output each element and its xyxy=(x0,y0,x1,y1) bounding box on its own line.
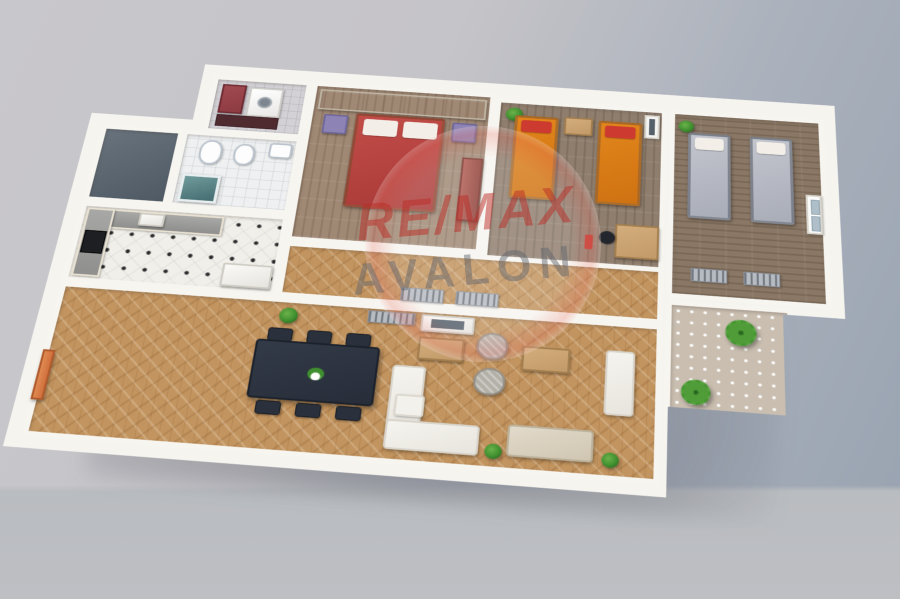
desk xyxy=(614,224,659,261)
room-kids-bedroom xyxy=(481,98,668,273)
ottoman xyxy=(393,394,425,418)
toilet xyxy=(197,140,225,165)
balcony xyxy=(663,299,796,425)
palm-plant xyxy=(681,379,711,407)
pillow xyxy=(756,141,785,155)
nightstand-left xyxy=(321,114,349,135)
window-pane xyxy=(811,200,821,215)
pillow xyxy=(695,137,724,151)
double-bed xyxy=(343,113,446,213)
tv-screen xyxy=(649,119,655,135)
room-bathroom xyxy=(166,129,304,215)
dining-chair xyxy=(294,403,322,419)
room-master-bedroom xyxy=(285,81,496,254)
radiator xyxy=(400,287,444,304)
dining-chair xyxy=(254,400,282,416)
pillow xyxy=(362,119,398,137)
window xyxy=(806,195,823,235)
window-pane xyxy=(811,216,821,232)
radiator xyxy=(743,272,780,288)
tv xyxy=(431,319,465,330)
entry-door xyxy=(30,349,55,400)
bathroom-sink xyxy=(268,143,294,159)
dining-chair xyxy=(334,406,361,422)
coffee-table xyxy=(521,346,571,374)
plant xyxy=(601,452,619,469)
armchair xyxy=(476,332,509,360)
radiator xyxy=(455,291,499,308)
single-bed-orange-1 xyxy=(508,115,559,201)
red-dresser xyxy=(456,157,484,222)
single-bed-gray-2 xyxy=(750,137,795,226)
red-accent-item xyxy=(584,234,593,249)
plant xyxy=(679,120,694,133)
washing-machine xyxy=(245,87,284,118)
pillow xyxy=(521,120,552,134)
armchair xyxy=(472,367,506,396)
laundry-red-cabinet xyxy=(217,84,247,114)
render-backdrop: RE/MAX AVALON xyxy=(0,0,900,599)
table-centerpiece-plant xyxy=(306,367,325,381)
single-bed-orange-2 xyxy=(595,121,643,207)
room-storage xyxy=(82,124,185,207)
plant xyxy=(484,443,503,459)
kids-nightstand xyxy=(564,117,594,136)
room-laundry xyxy=(202,75,313,139)
nightstand-right xyxy=(451,122,478,143)
room-kitchen xyxy=(61,201,289,297)
radiator xyxy=(691,268,728,284)
plant xyxy=(278,307,299,324)
pillow xyxy=(605,125,636,139)
washer-drum xyxy=(256,96,273,108)
radiator xyxy=(367,310,416,325)
bidet xyxy=(231,143,256,165)
desk-chair xyxy=(599,231,616,245)
tv-sideboard xyxy=(420,314,475,335)
dining-table xyxy=(246,338,380,406)
single-bed-gray-1 xyxy=(687,132,731,220)
shower xyxy=(177,173,222,203)
coffee-table xyxy=(417,336,465,362)
beige-sofa xyxy=(506,424,594,463)
white-armchair xyxy=(603,350,635,417)
pillow xyxy=(402,121,438,139)
tv-panel xyxy=(644,115,660,139)
kitchen-sink xyxy=(137,213,165,227)
kitchen-appliance xyxy=(219,263,273,290)
room-guest-bedroom xyxy=(666,109,833,309)
white-sofa-seat xyxy=(382,419,480,456)
palm-plant xyxy=(725,319,756,347)
